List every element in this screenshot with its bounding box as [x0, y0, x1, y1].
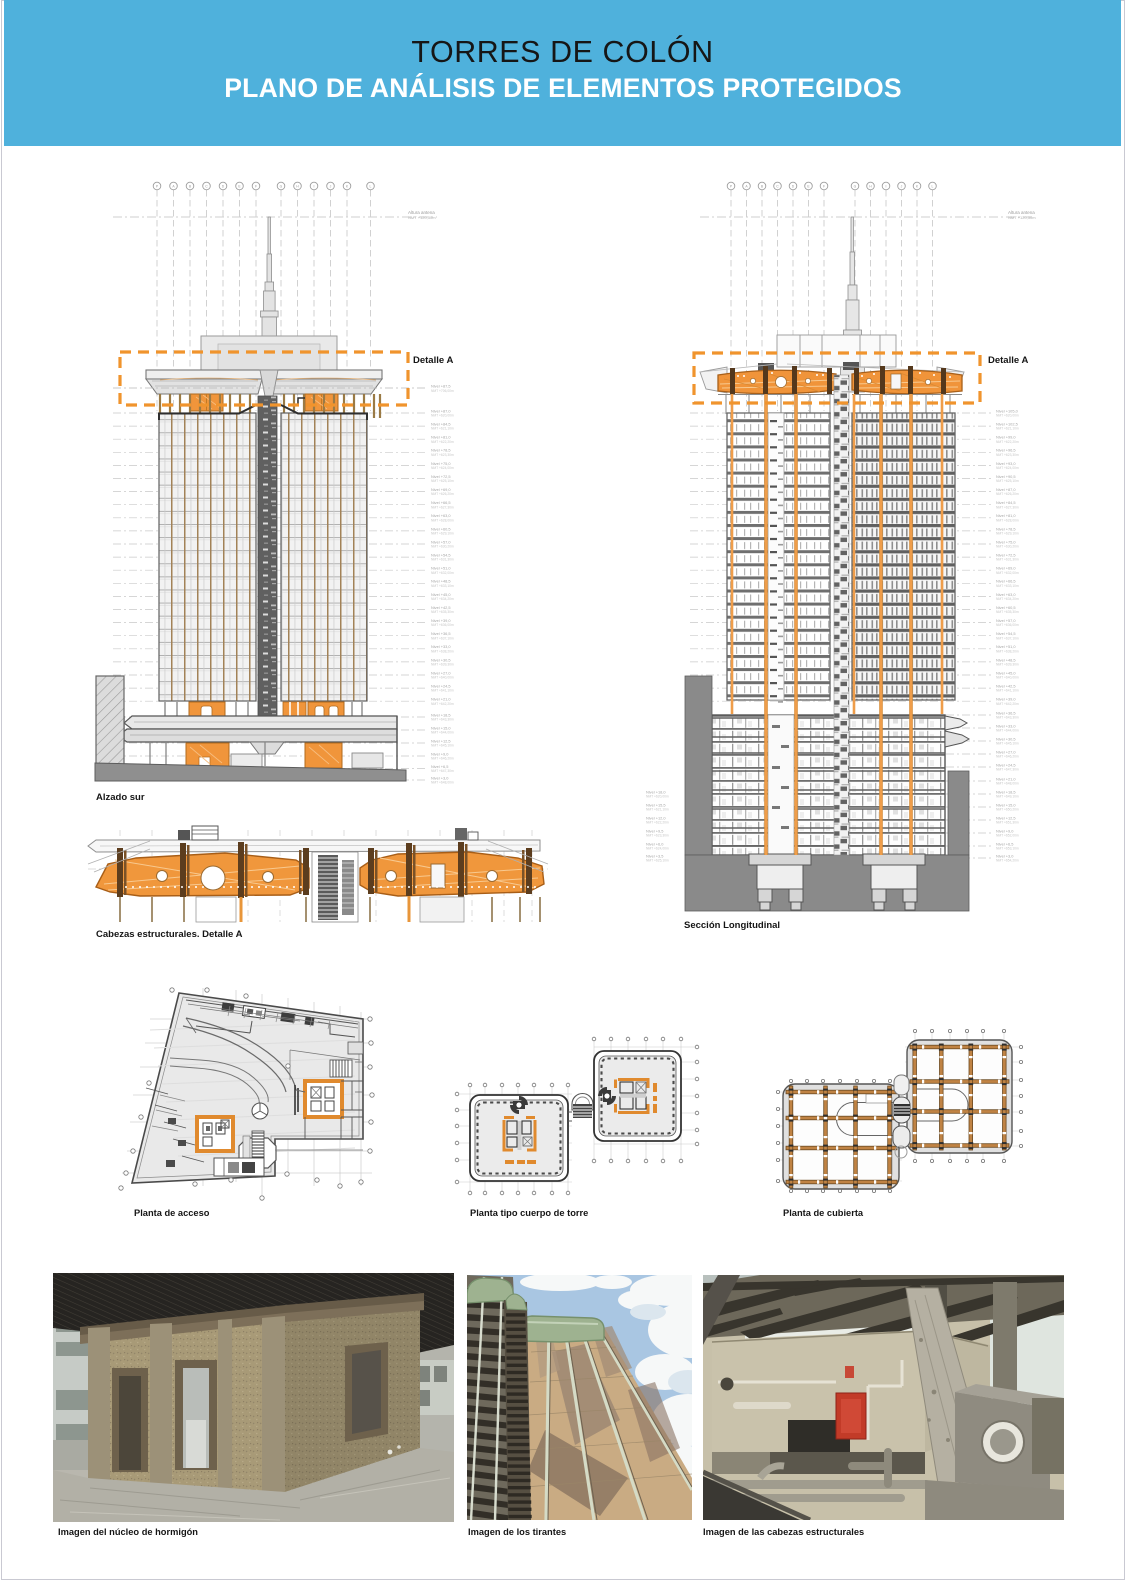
svg-text:NMT +645,10m: NMT +645,10m [996, 742, 1019, 746]
svg-text:NMT +629,10m: NMT +629,10m [996, 532, 1019, 536]
svg-text:NMT +630,20m: NMT +630,20m [996, 545, 1019, 549]
svg-text:NMT +624,00m: NMT +624,00m [431, 466, 454, 470]
svg-text:I: I [314, 184, 315, 188]
svg-text:NMT +626,20m: NMT +626,20m [996, 492, 1019, 496]
svg-text:G: G [854, 184, 857, 188]
svg-text:NMT +633,10m: NMT +633,10m [996, 584, 1019, 588]
svg-text:NMT +637,10m: NMT +637,10m [431, 636, 454, 640]
svg-text:NMT +640,00m: NMT +640,00m [431, 676, 454, 680]
svg-text:NMT +632,00m: NMT +632,00m [431, 571, 454, 575]
svg-text:NMT +621,10m: NMT +621,10m [996, 427, 1019, 431]
svg-text:NMT +621,10m: NMT +621,10m [646, 808, 669, 812]
svg-text:NMT +635,30m: NMT +635,30m [431, 610, 454, 614]
svg-text:NMT +647,30m: NMT +647,30m [996, 768, 1019, 772]
svg-text:NMT +622,20m: NMT +622,20m [996, 440, 1019, 444]
svg-text:G: G [280, 184, 283, 188]
svg-text:NMT +628,00m: NMT +628,00m [996, 518, 1019, 522]
svg-text:NMT +646,20m: NMT +646,20m [996, 755, 1019, 759]
svg-text:NMT +627,30m: NMT +627,30m [996, 505, 1019, 509]
svg-text:NMT +642,20m: NMT +642,20m [431, 702, 454, 706]
svg-text:NMT +636,00m: NMT +636,00m [996, 623, 1019, 627]
svg-text:NMT +629,10m: NMT +629,10m [431, 532, 454, 536]
svg-text:NMT +621,10m: NMT +621,10m [431, 427, 454, 431]
svg-text:NMT +644,00m: NMT +644,00m [431, 731, 454, 735]
svg-text:J: J [901, 184, 903, 188]
svg-text:NMT +641,10m: NMT +641,10m [996, 689, 1019, 693]
svg-text:NMT +620,00m: NMT +620,00m [996, 414, 1019, 418]
svg-text:NMT +654,20m: NMT +654,20m [996, 859, 1019, 863]
svg-text:NMT +120,50m: NMT +120,50m [1008, 215, 1036, 220]
svg-text:NMT +630,20m: NMT +630,20m [431, 545, 454, 549]
svg-text:NMT +631,30m: NMT +631,30m [431, 558, 454, 562]
svg-text:NMT +648,00m: NMT +648,00m [996, 782, 1019, 786]
svg-text:NMT +651,30m: NMT +651,30m [996, 821, 1019, 825]
svg-text:NMT +620,00m: NMT +620,00m [431, 414, 454, 418]
svg-text:NMT +623,30m: NMT +623,30m [646, 834, 669, 838]
svg-text:NMT +640,00m: NMT +640,00m [996, 676, 1019, 680]
svg-text:NMT +639,30m: NMT +639,30m [431, 663, 454, 667]
svg-text:L: L [932, 184, 934, 188]
svg-text:Nivel +87,5: Nivel +87,5 [431, 383, 451, 388]
svg-text:NMT +644,00m: NMT +644,00m [996, 729, 1019, 733]
svg-text:NMT +624,00m: NMT +624,00m [996, 466, 1019, 470]
svg-text:NMT +625,10m: NMT +625,10m [431, 479, 454, 483]
svg-text:NMT +638,20m: NMT +638,20m [431, 649, 454, 653]
svg-text:NMT +632,00m: NMT +632,00m [996, 571, 1019, 575]
svg-text:Detalle A: Detalle A [413, 355, 453, 366]
svg-text:NMT +620,00m: NMT +620,00m [646, 795, 669, 799]
svg-text:NMT +647,30m: NMT +647,30m [431, 769, 454, 773]
svg-text:NMT +625,10m: NMT +625,10m [996, 479, 1019, 483]
svg-text:NMT +623,30m: NMT +623,30m [996, 453, 1019, 457]
svg-text:NMT +633,10m: NMT +633,10m [431, 584, 454, 588]
svg-text:J: J [330, 184, 332, 188]
svg-text:I: I [886, 184, 887, 188]
svg-text:F: F [823, 184, 825, 188]
svg-text:NMT +706,00m: NMT +706,00m [431, 389, 454, 393]
svg-text:NMT +641,10m: NMT +641,10m [431, 689, 454, 693]
svg-text:NMT +650,20m: NMT +650,20m [996, 808, 1019, 812]
svg-text:NMT +120,50m: NMT +120,50m [408, 215, 436, 220]
svg-text:NMT +643,30m: NMT +643,30m [431, 718, 454, 722]
svg-text:NMT +634,20m: NMT +634,20m [431, 597, 454, 601]
svg-text:NMT +652,00m: NMT +652,00m [996, 834, 1019, 838]
svg-text:Detalle A: Detalle A [988, 355, 1028, 366]
svg-text:NMT +646,20m: NMT +646,20m [431, 757, 454, 761]
svg-text:NMT +631,30m: NMT +631,30m [996, 558, 1019, 562]
svg-text:NMT +628,00m: NMT +628,00m [431, 518, 454, 522]
svg-text:NMT +645,10m: NMT +645,10m [431, 744, 454, 748]
svg-text:NMT +622,20m: NMT +622,20m [646, 821, 669, 825]
svg-text:NMT +624,00m: NMT +624,00m [646, 847, 669, 851]
svg-text:NMT +635,30m: NMT +635,30m [996, 610, 1019, 614]
svg-text:NMT +649,10m: NMT +649,10m [996, 795, 1019, 799]
svg-text:NMT +627,30m: NMT +627,30m [431, 505, 454, 509]
svg-text:NMT +634,20m: NMT +634,20m [996, 597, 1019, 601]
svg-text:NMT +653,10m: NMT +653,10m [996, 847, 1019, 851]
svg-text:NMT +626,20m: NMT +626,20m [431, 492, 454, 496]
svg-text:F: F [255, 184, 257, 188]
svg-text:NMT +636,00m: NMT +636,00m [431, 623, 454, 627]
svg-text:NMT +638,20m: NMT +638,20m [996, 649, 1019, 653]
svg-text:NMT +623,30m: NMT +623,30m [431, 453, 454, 457]
svg-text:NMT +637,10m: NMT +637,10m [996, 636, 1019, 640]
svg-text:L: L [370, 184, 372, 188]
svg-text:NMT +625,10m: NMT +625,10m [646, 859, 669, 863]
svg-text:NMT +642,20m: NMT +642,20m [996, 702, 1019, 706]
svg-text:NMT +648,00m: NMT +648,00m [431, 781, 454, 785]
svg-text:NMT +643,30m: NMT +643,30m [996, 716, 1019, 720]
svg-text:NMT +639,30m: NMT +639,30m [996, 663, 1019, 667]
svg-text:NMT +622,20m: NMT +622,20m [431, 440, 454, 444]
